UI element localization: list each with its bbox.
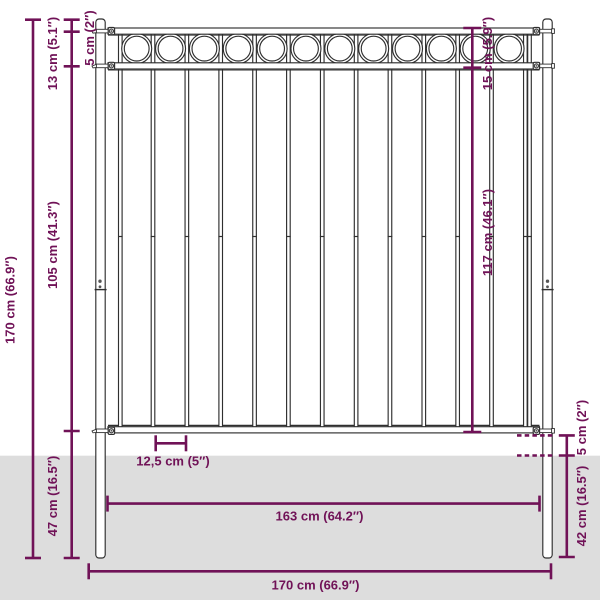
svg-text:5 cm (2″): 5 cm (2″) xyxy=(574,400,589,455)
svg-text:163 cm (64.2″): 163 cm (64.2″) xyxy=(276,509,364,524)
svg-text:15 cm (5.9″): 15 cm (5.9″) xyxy=(480,17,495,90)
svg-text:170 cm (66.9″): 170 cm (66.9″) xyxy=(272,578,360,593)
svg-text:170 cm (66.9″): 170 cm (66.9″) xyxy=(3,256,18,344)
svg-text:12,5 cm (5″): 12,5 cm (5″) xyxy=(136,454,209,469)
svg-text:117 cm (46.1″): 117 cm (46.1″) xyxy=(480,189,495,276)
svg-text:42 cm (16.5″): 42 cm (16.5″) xyxy=(574,466,589,547)
svg-text:105 cm (41.3″): 105 cm (41.3″) xyxy=(45,201,60,289)
svg-text:47 cm (16.5″): 47 cm (16.5″) xyxy=(45,456,60,537)
svg-text:13 cm (5.1″): 13 cm (5.1″) xyxy=(45,17,60,90)
svg-text:5 cm (2″): 5 cm (2″) xyxy=(82,10,97,65)
